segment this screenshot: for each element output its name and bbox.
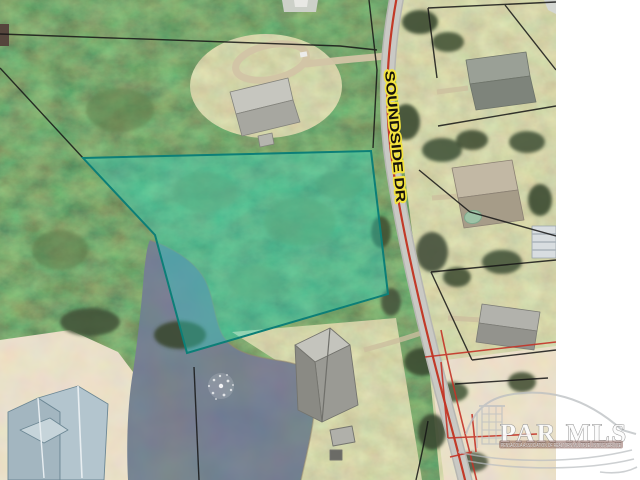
house-top-left-edge	[0, 24, 9, 46]
house-top-right	[466, 52, 536, 110]
map-canvas: SOUNDSIDE DR PAR MLS PENSACOLA ASSOCIATI…	[0, 0, 640, 480]
watermark-tagline: PENSACOLA ASSOCIATION OF REALTORS MULTIP…	[501, 443, 621, 449]
aerial-photo: SOUNDSIDE DR	[0, 0, 556, 480]
white-margin	[556, 0, 640, 480]
house-right-lower	[476, 304, 540, 350]
mls-aerial-map: SOUNDSIDE DR PAR MLS PENSACOLA ASSOCIATI…	[0, 0, 640, 480]
house-right-middle	[452, 160, 524, 228]
building-top-edge	[282, 0, 318, 12]
